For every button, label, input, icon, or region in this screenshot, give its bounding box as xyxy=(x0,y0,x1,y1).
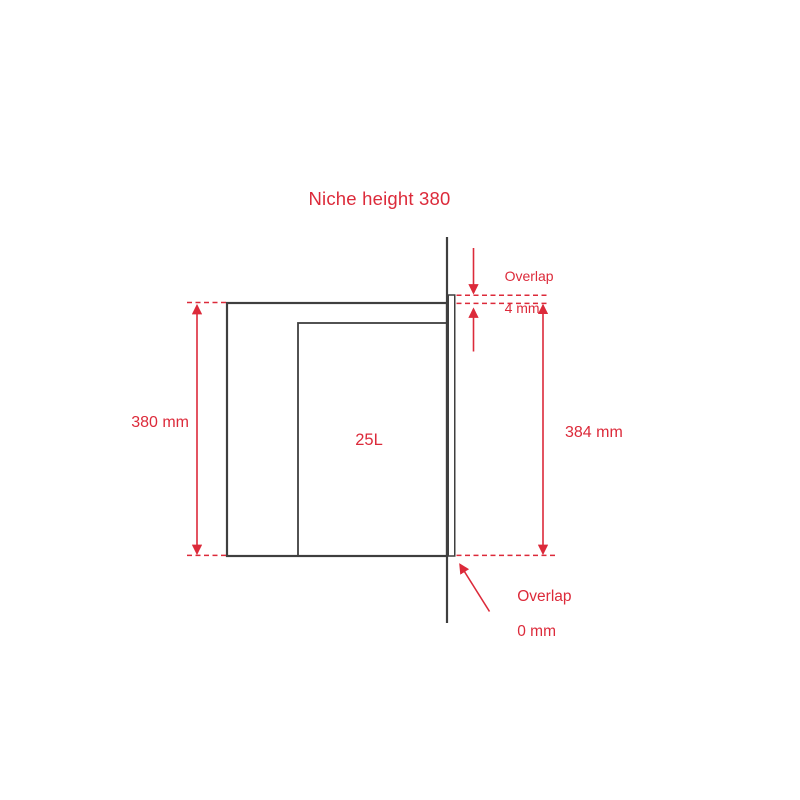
overlap-bottom-label: Overlap 0 mm xyxy=(500,570,572,658)
overlap-top-label: Overlap 4 mm xyxy=(489,252,554,332)
diagram-title: Niche height 380 xyxy=(227,188,532,209)
overlap-top-label-value: 4 mm xyxy=(505,300,540,316)
niche-height-dimension-label: 380 mm xyxy=(89,414,189,432)
installation-diagram xyxy=(0,0,800,800)
appliance-body-outline xyxy=(227,303,447,556)
door-height-dimension-label: 384 mm xyxy=(565,424,623,442)
overlap-bottom-label-value: 0 mm xyxy=(517,623,556,640)
overlap-bottom-label-word: Overlap xyxy=(517,588,571,605)
door-front-panel xyxy=(448,295,455,556)
overlap-0mm-pointer-arrow xyxy=(460,565,490,612)
overlap-top-label-word: Overlap xyxy=(505,268,554,284)
cavity-volume-label: 25L xyxy=(344,431,394,450)
installation-diagram-page: Niche height 380 380 mm 384 mm Overlap 4… xyxy=(0,0,800,800)
